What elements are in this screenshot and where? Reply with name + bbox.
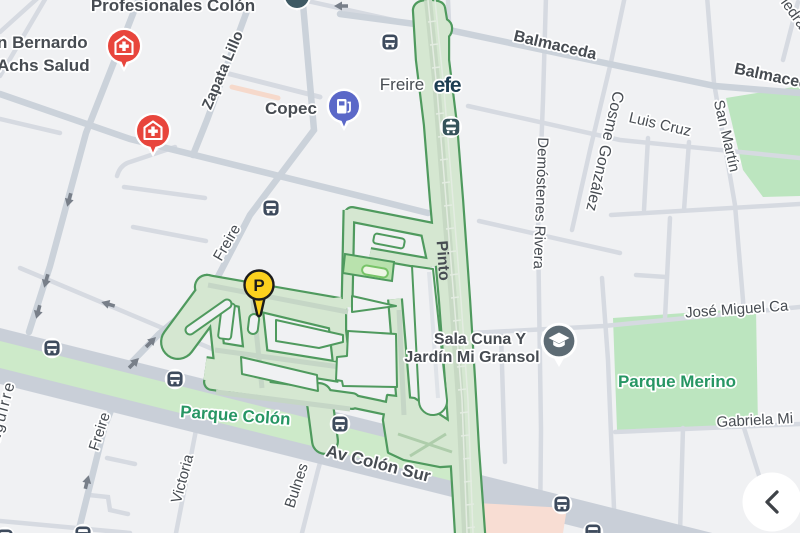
svg-text:Freire: Freire	[380, 75, 424, 94]
svg-text:Copec: Copec	[265, 99, 317, 118]
svg-text:Parque Merino: Parque Merino	[618, 372, 736, 391]
svg-text:P: P	[253, 276, 264, 295]
svg-text:Achs Salud: Achs Salud	[0, 56, 90, 75]
svg-text:Profesionales Colón: Profesionales Colón	[91, 0, 255, 15]
svg-text:n Bernardo: n Bernardo	[0, 33, 88, 52]
svg-text:Jardín Mi Gransol: Jardín Mi Gransol	[404, 349, 539, 366]
svg-text:Sala Cuna Y: Sala Cuna Y	[434, 331, 527, 348]
svg-text:Pinto: Pinto	[433, 240, 453, 281]
svg-text:efe: efe	[434, 74, 461, 97]
